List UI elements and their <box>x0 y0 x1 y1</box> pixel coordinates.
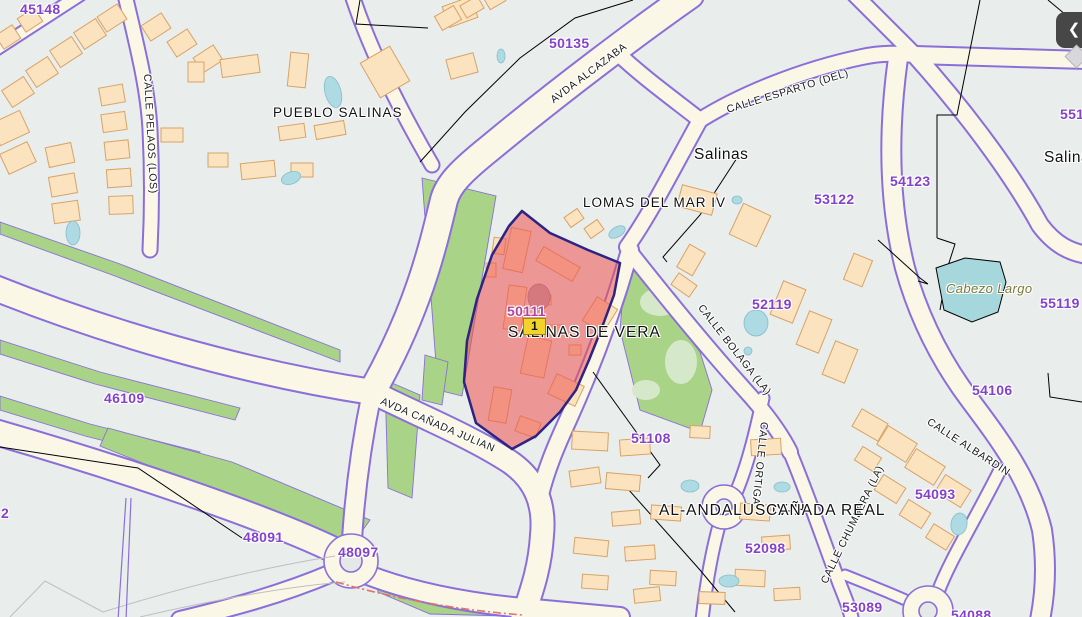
parcel-marker[interactable]: 1 <box>523 318 546 335</box>
back-button[interactable]: ❮ <box>1056 12 1082 48</box>
map-canvas[interactable] <box>0 0 1082 617</box>
map-viewport[interactable]: 45148 50135 54123 53122 551 55119 52119 … <box>0 0 1082 617</box>
chevron-left-icon: ❮ <box>1068 21 1081 38</box>
